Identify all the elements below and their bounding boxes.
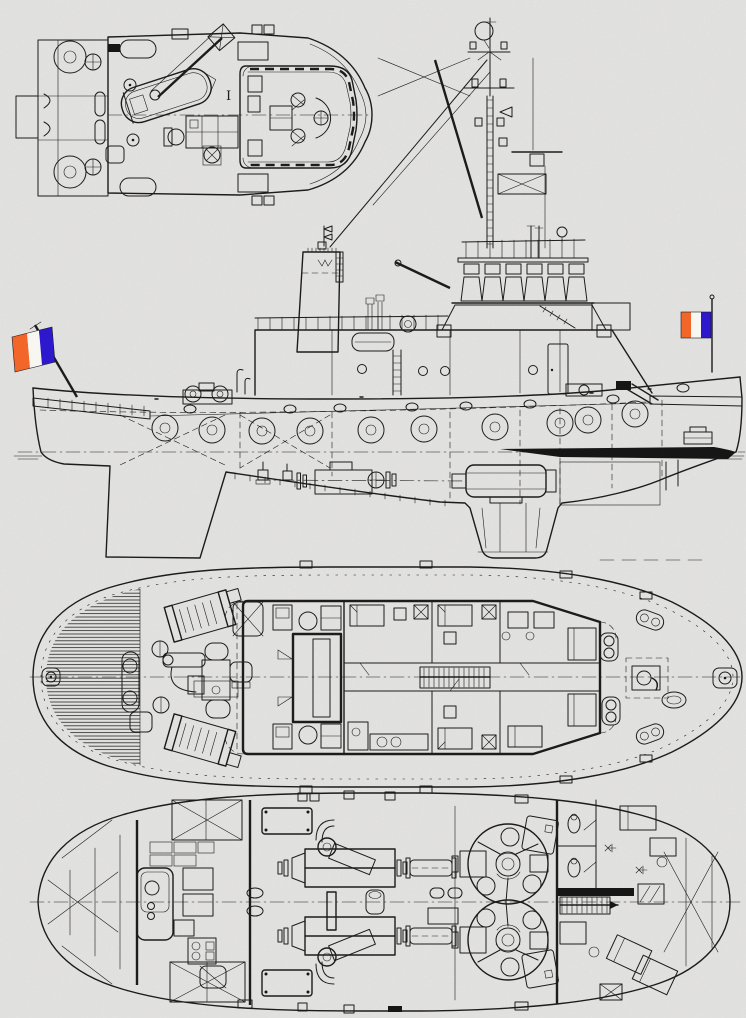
flag-stripe-blue — [701, 312, 711, 338]
tugboat-general-arrangement: I — [0, 0, 746, 1018]
flag-stripe-white — [691, 312, 701, 338]
flag-stripe-orange — [681, 312, 691, 338]
section-marking: I — [226, 89, 231, 104]
drawing-sheet: I — [0, 0, 746, 1018]
